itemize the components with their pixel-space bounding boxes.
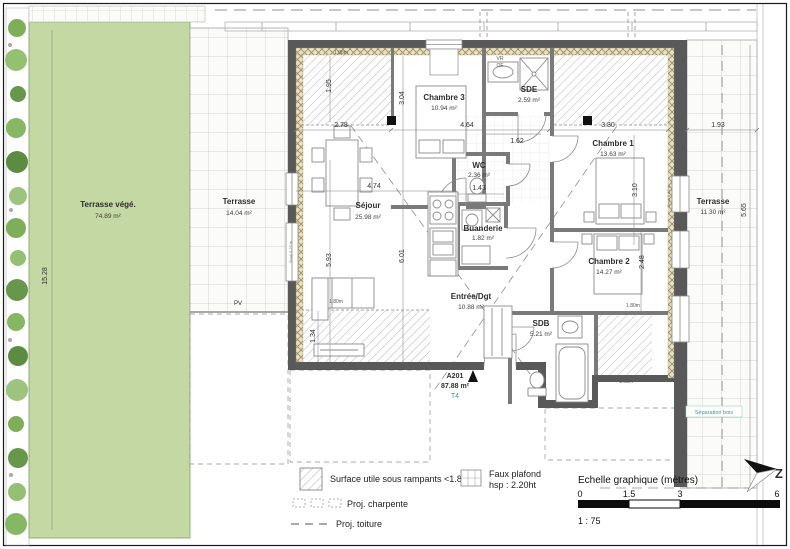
room-area-buanderie: 1.82 m² [472,235,495,242]
dim-chambre1-w: 3.80 [601,122,615,129]
room-name-terrasse-ouest: Terrasse [223,197,256,206]
room-name-sde: SDE [521,85,538,94]
dim-terrasse-est-w: 1.93 [711,122,725,129]
dim-wc-w: 1.43 [472,185,486,192]
separation-bois-text: Séparation bois [695,410,733,416]
room-area-sejour: 25.98 m² [355,214,381,221]
unit-code: A201 [447,373,464,380]
dim-seuil-right: Seuil 0.35 m [666,184,671,207]
room-area-chambre3: 10.94 m² [431,105,457,112]
scale-title: Echelle graphique (mètres) [578,475,698,486]
green-terrace [29,22,190,538]
legend-faux-plafond-text-1: Faux plafond [489,469,541,479]
room-name-entree: Entrée/Dgt [451,292,492,301]
vegetation-strip [5,8,29,545]
dim-sde-w: 1.62 [510,138,524,145]
scale-segment-3 [680,500,780,508]
terrace-west-paving [190,28,288,312]
room-name-wc: WC [472,161,486,170]
room-name-chambre1: Chambre 1 [592,139,634,148]
dim-chambre3-h: 3.04 [399,91,406,105]
room-area-chambre2: 14.27 m² [596,269,622,276]
window-annotation-of: OF [497,63,504,69]
room-area-entree: 10.88 m² [458,304,484,311]
floor-plan-page: Terrasse végé. 74.89 m² Terrasse 14.04 m… [0,0,790,549]
pv-label: PV [234,301,242,307]
room-area-terrasse-vege: 74.89 m² [95,213,121,220]
dim-chambre1-h: 3.10 [632,183,639,197]
legend-toiture-text: Proj. toiture [336,519,382,529]
dim-rampant-nw: 1.95 [326,79,333,93]
dim-terrasse-vege-h: 15.28 [42,267,49,285]
dim-chambre2-h: 2.48 [639,255,646,269]
scale-ratio: 1 : 75 [578,516,601,526]
dim-terrasse-est-h: 5.65 [741,203,748,217]
dim-rampant-se: 1.08m [619,379,633,385]
unit-type: T4 [451,393,459,400]
north-letter: Z [775,466,783,481]
room-name-buanderie: Buanderie [463,224,503,233]
dim-sejour-h-left: 5.93 [326,253,333,267]
paving-strip-top [29,6,205,22]
scale-segment-2 [629,500,680,508]
floor-plan-drawing: Terrasse végé. 74.89 m² Terrasse 14.04 m… [0,0,790,549]
room-name-sdb: SDB [533,319,550,328]
room-area-terrasse-ouest: 14.04 m² [226,210,252,217]
scale-tick-2: 3 [677,489,682,499]
dim-seuil-left: Seuil 0.25 m [288,240,293,263]
room-area-sde: 2.59 m² [518,97,541,104]
dim-rampant-sw: 1.34 [310,329,317,343]
room-area-chambre1: 13.63 m² [600,151,626,158]
legend-faux-plafond-text-2: hsp : 2.20ht [489,480,537,490]
legend-charpente-text: Proj. charpente [347,499,408,509]
unit-area: 87.88 m² [441,383,470,390]
scale-tick-0: 0 [577,489,582,499]
room-name-terrasse-est: Terrasse [697,197,730,206]
dim-sejour-h-right: 6.01 [399,249,406,263]
room-area-wc: 2.36 m² [468,172,491,179]
scale-tick-3: 6 [774,489,779,499]
room-area-terrasse-est: 11.30 m² [700,209,726,216]
legend-rampants-text: Surface utile sous rampants <1.80m [330,474,474,484]
separation-bois-label: Séparation bois [686,406,742,417]
room-name-sejour: Séjour [356,201,381,210]
dim-chambre3-w: 4.64 [460,122,474,129]
scale-tick-1: 1.5 [623,489,636,499]
scale-segment-1 [578,500,629,508]
room-area-sdb: 5.21 m² [530,331,553,338]
window-annotation-vr: VR [497,56,504,62]
dim-sejour-top: 2.78 [334,122,348,129]
legend-rampants-swatch [300,468,322,490]
dim-sejour-w: 4.74 [367,183,381,190]
room-name-chambre3: Chambre 3 [423,93,465,102]
room-name-chambre2: Chambre 2 [588,257,630,266]
dim-sofa-w: 1.80m [329,299,343,305]
dim-rampant-nw-top: 1.08m [334,50,348,56]
dim-chambre2-foot: 1.80m [626,303,640,309]
room-name-terrasse-vege: Terrasse végé. [80,200,135,209]
